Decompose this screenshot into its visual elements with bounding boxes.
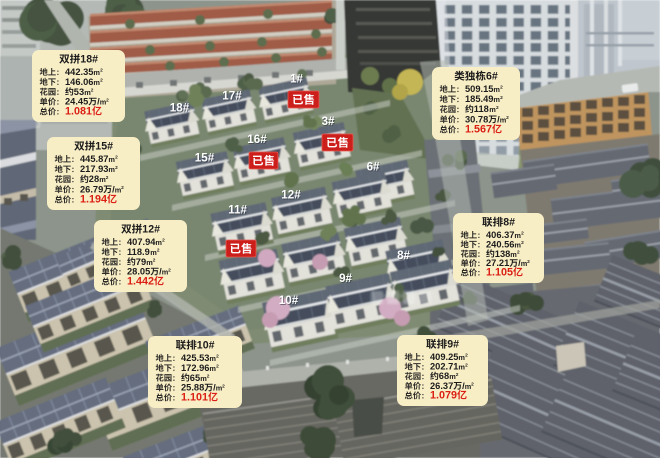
svg-text:9#: 9# bbox=[339, 272, 352, 285]
svg-text:409.25: 409.25 bbox=[430, 352, 458, 362]
svg-text:10#: 10# bbox=[279, 294, 299, 307]
svg-text:1.442: 1.442 bbox=[127, 276, 154, 288]
svg-text:2: 2 bbox=[91, 87, 94, 93]
svg-text:425.53: 425.53 bbox=[181, 353, 209, 363]
svg-text:445.87: 445.87 bbox=[80, 154, 108, 164]
svg-text:6#: 6# bbox=[486, 71, 498, 83]
svg-text:185.49: 185.49 bbox=[465, 94, 493, 104]
svg-text:17#: 17# bbox=[222, 90, 242, 103]
svg-text:11#: 11# bbox=[228, 204, 247, 217]
svg-text:15#: 15# bbox=[95, 141, 113, 153]
svg-text:172.96: 172.96 bbox=[181, 363, 209, 373]
svg-text:2: 2 bbox=[517, 249, 520, 255]
svg-text:18#: 18# bbox=[170, 102, 190, 115]
svg-text:2: 2 bbox=[521, 231, 524, 237]
svg-text:407.94: 407.94 bbox=[127, 237, 156, 247]
svg-text:2: 2 bbox=[100, 78, 103, 84]
svg-text:2: 2 bbox=[465, 353, 468, 359]
svg-text:1.101: 1.101 bbox=[181, 392, 208, 404]
svg-text:12#: 12# bbox=[281, 189, 301, 202]
svg-text:18#: 18# bbox=[80, 54, 98, 66]
svg-text:509.15: 509.15 bbox=[465, 84, 493, 94]
svg-text:2: 2 bbox=[115, 155, 118, 161]
svg-text:53: 53 bbox=[74, 87, 84, 97]
svg-text:79: 79 bbox=[136, 257, 146, 267]
svg-text:118.9: 118.9 bbox=[127, 247, 150, 257]
svg-text:2: 2 bbox=[506, 115, 509, 121]
svg-text:1.194: 1.194 bbox=[80, 194, 107, 206]
svg-text:28: 28 bbox=[89, 174, 99, 184]
svg-text:2: 2 bbox=[471, 382, 474, 388]
svg-text:9#: 9# bbox=[447, 339, 459, 351]
svg-text:2: 2 bbox=[115, 165, 118, 171]
svg-text:118: 118 bbox=[474, 104, 489, 114]
svg-text:2: 2 bbox=[106, 97, 109, 103]
svg-text:2: 2 bbox=[100, 68, 103, 74]
svg-text:6#: 6# bbox=[367, 161, 380, 174]
svg-text:68: 68 bbox=[439, 371, 449, 381]
svg-text:1.081: 1.081 bbox=[65, 106, 92, 118]
svg-text:2: 2 bbox=[207, 373, 210, 379]
svg-text:2: 2 bbox=[216, 354, 219, 360]
svg-text:146.06: 146.06 bbox=[65, 77, 93, 87]
svg-text:3#: 3# bbox=[322, 115, 335, 128]
svg-text:2: 2 bbox=[106, 175, 109, 181]
svg-text:2: 2 bbox=[162, 238, 165, 244]
svg-text:2: 2 bbox=[157, 248, 160, 254]
svg-text:12#: 12# bbox=[142, 224, 160, 236]
svg-text:1.105: 1.105 bbox=[486, 267, 513, 279]
svg-text:2: 2 bbox=[465, 362, 468, 368]
svg-text:442.35: 442.35 bbox=[65, 67, 93, 77]
svg-text:8#: 8# bbox=[397, 249, 410, 262]
svg-text:15#: 15# bbox=[195, 152, 215, 165]
svg-text:16#: 16# bbox=[247, 133, 267, 146]
svg-text:1.567: 1.567 bbox=[465, 124, 492, 136]
svg-text:65: 65 bbox=[190, 373, 200, 383]
svg-text:217.93: 217.93 bbox=[80, 164, 108, 174]
svg-text:2: 2 bbox=[222, 383, 225, 389]
svg-text:1.079: 1.079 bbox=[430, 390, 457, 402]
svg-text:2: 2 bbox=[500, 85, 503, 91]
svg-text:2: 2 bbox=[168, 267, 171, 273]
svg-text:2: 2 bbox=[521, 240, 524, 246]
svg-text:1#: 1# bbox=[290, 73, 303, 86]
svg-text:2: 2 bbox=[153, 257, 156, 263]
svg-text:2: 2 bbox=[121, 185, 124, 191]
svg-text:2: 2 bbox=[527, 259, 530, 265]
svg-text:8#: 8# bbox=[503, 217, 515, 229]
svg-text:10#: 10# bbox=[197, 340, 215, 352]
svg-text:2: 2 bbox=[216, 364, 219, 370]
svg-text:202.71: 202.71 bbox=[430, 362, 458, 372]
svg-text:2: 2 bbox=[500, 95, 503, 101]
svg-text:2: 2 bbox=[456, 372, 459, 378]
svg-text:2: 2 bbox=[496, 105, 499, 111]
